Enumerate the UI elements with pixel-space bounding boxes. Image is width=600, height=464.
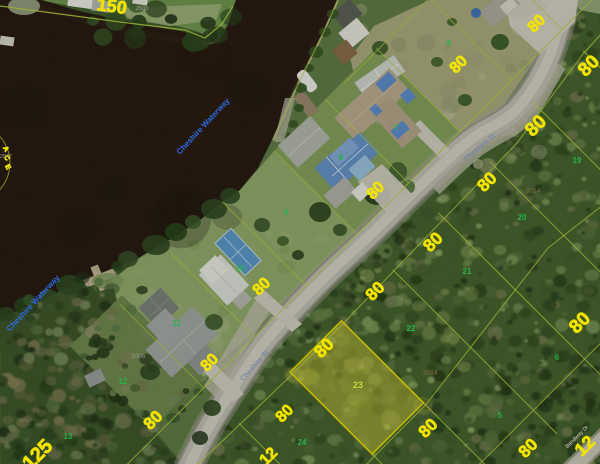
svg-text:3503: 3503 <box>372 119 387 126</box>
svg-text:3014: 3014 <box>422 370 438 377</box>
svg-text:12: 12 <box>119 377 128 386</box>
svg-text:7: 7 <box>394 124 399 133</box>
svg-text:6: 6 <box>447 39 452 48</box>
svg-text:11: 11 <box>173 319 182 328</box>
svg-text:9: 9 <box>284 208 289 217</box>
svg-text:20: 20 <box>518 213 527 222</box>
svg-text:2567: 2567 <box>0 154 12 160</box>
svg-text:3006: 3006 <box>131 353 146 360</box>
svg-text:22: 22 <box>407 324 416 333</box>
svg-text:13: 13 <box>64 432 73 441</box>
svg-text:21: 21 <box>463 267 472 276</box>
svg-text:3014: 3014 <box>525 188 541 195</box>
svg-text:5: 5 <box>498 411 503 420</box>
svg-text:24: 24 <box>298 438 307 447</box>
svg-text:6: 6 <box>555 353 560 362</box>
svg-text:19: 19 <box>573 156 582 165</box>
svg-text:10: 10 <box>236 264 245 273</box>
svg-text:2503: 2503 <box>136 6 148 12</box>
svg-text:8: 8 <box>339 153 344 162</box>
svg-text:23: 23 <box>353 380 363 390</box>
